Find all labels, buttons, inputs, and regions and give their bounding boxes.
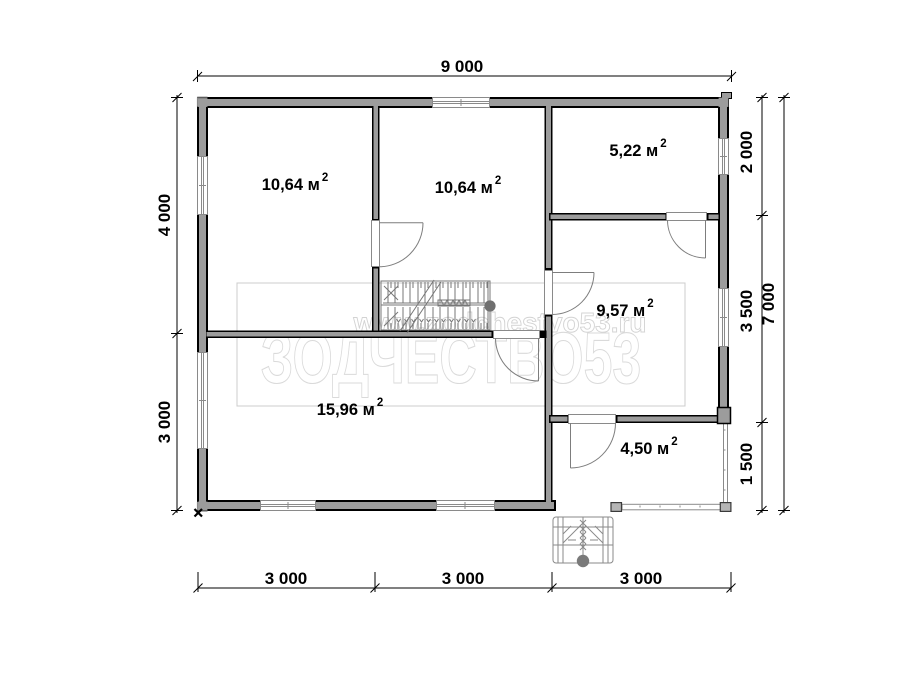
svg-text:4,50 м2: 4,50 м2 xyxy=(620,436,677,458)
svg-text:3 000: 3 000 xyxy=(265,569,308,588)
svg-text:3 500: 3 500 xyxy=(737,290,756,333)
svg-text:9,57 м2: 9,57 м2 xyxy=(596,298,653,320)
svg-text:15,96 м2: 15,96 м2 xyxy=(317,397,384,419)
svg-text:3 000: 3 000 xyxy=(155,401,174,444)
svg-text:3 000: 3 000 xyxy=(442,569,485,588)
svg-text:10,64 м2: 10,64 м2 xyxy=(262,172,329,194)
svg-text:10,64 м2: 10,64 м2 xyxy=(435,175,502,197)
svg-text:4 000: 4 000 xyxy=(155,194,174,237)
svg-text:5,22 м2: 5,22 м2 xyxy=(609,138,666,160)
svg-text:7 000: 7 000 xyxy=(759,283,778,326)
svg-text:3 000: 3 000 xyxy=(620,569,663,588)
svg-text:9 000: 9 000 xyxy=(441,57,484,76)
svg-text:2 000: 2 000 xyxy=(737,131,756,174)
svg-text:1 500: 1 500 xyxy=(737,443,756,486)
